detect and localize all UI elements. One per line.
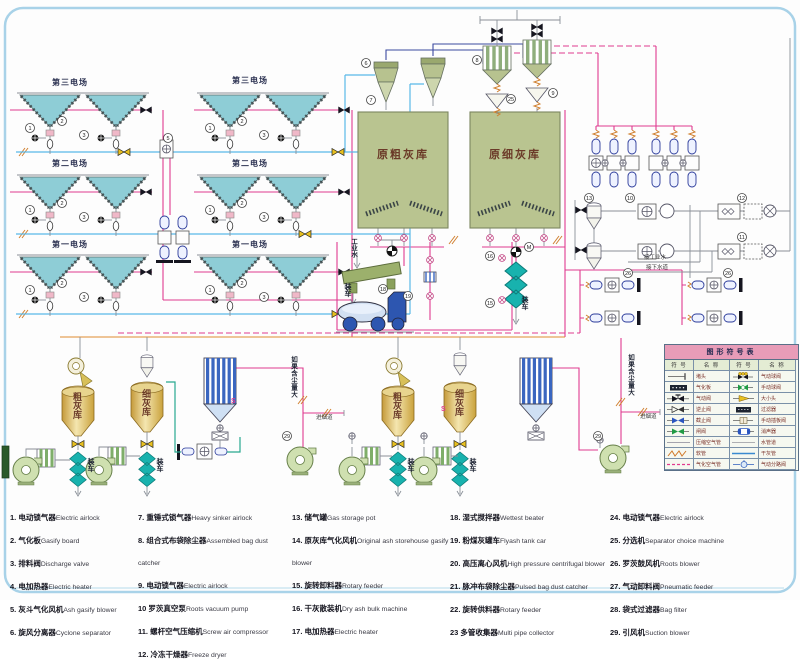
- callout-1: 1: [206, 206, 215, 215]
- bottom-right-silos: [339, 353, 476, 496]
- reducer-symbol: [731, 394, 757, 403]
- legend-item: 20. 高压离心风机High pressure centrifugal blow…: [450, 551, 610, 573]
- svg-text:1: 1: [28, 288, 31, 294]
- loading-label-bl2: 装车: [156, 458, 163, 472]
- svg-text:16: 16: [487, 254, 493, 260]
- symbol-name: 大小头: [759, 393, 796, 404]
- callout-3: 3: [80, 131, 89, 140]
- legend-item: 6. 旋风分离器Cyclone separator: [10, 620, 138, 642]
- raw-coarse-silo-label: 原粗灰库: [377, 150, 429, 161]
- symbol-name: 水管道: [759, 437, 796, 448]
- svg-text:9: 9: [551, 91, 554, 97]
- legend-item: 8. 组合式布袋除尘器Assembled bag dust catcher: [138, 528, 292, 571]
- symbol-cell: [730, 382, 759, 393]
- if-dusty-note-right: 如果含尘量大: [626, 354, 633, 396]
- symbol-cell: [730, 404, 759, 415]
- svg-text:29: 29: [284, 434, 290, 440]
- to-sewer-label: 接下水道: [646, 266, 668, 272]
- raw-fine-silo-label: 原细灰库: [489, 150, 541, 161]
- svg-text:3: 3: [262, 295, 265, 301]
- svg-text:26: 26: [725, 271, 731, 277]
- svg-text:3: 3: [82, 295, 85, 301]
- svg-text:2: 2: [60, 201, 63, 207]
- symbol-cell: [665, 437, 694, 448]
- bottom-right-bag-filter: [520, 358, 552, 440]
- loading-label-bl1: 装车: [87, 458, 94, 472]
- svg-text:2: 2: [240, 119, 243, 125]
- dry-ash-bulk-loader: [499, 247, 527, 324]
- to-flue-label-left: 进烟道: [316, 416, 333, 422]
- svg-text:1: 1: [28, 126, 31, 132]
- svg-text:5: 5: [166, 136, 169, 142]
- ball_pneu-symbol: [731, 372, 757, 381]
- callout-2: 2: [58, 199, 67, 208]
- coarse-silo-label-left: 粗灰库: [72, 392, 81, 419]
- legend-item: 10 罗茨真空泵Roots vacuum pump: [138, 596, 292, 618]
- loading-label-br2: 装车: [469, 458, 476, 472]
- symbol-cell: [665, 448, 694, 459]
- svg-text:M: M: [527, 245, 532, 251]
- flyash-tank-truck: [336, 292, 414, 332]
- legend-item: 29. 引风机Suction blower: [610, 620, 786, 642]
- air_line-symbol: [666, 438, 692, 447]
- symbol-cell: [665, 404, 694, 415]
- callout-2: 2: [58, 117, 67, 126]
- callout-15: 15: [486, 299, 495, 308]
- svg-text:3: 3: [82, 215, 85, 221]
- callout-6: 6: [362, 59, 371, 68]
- symbol-cell: [730, 448, 759, 459]
- raw-fine-silo: [470, 112, 560, 228]
- legend-item: 14. 原灰库气化风机Original ash storehouse gasif…: [292, 528, 450, 571]
- s-mark-right: S: [441, 406, 446, 413]
- symbol-cell: [730, 437, 759, 448]
- symbol-name: 软管: [694, 448, 730, 459]
- callout-26: 26: [724, 269, 733, 278]
- raw-coarse-silo: [358, 112, 448, 228]
- gasify_board-symbol: [666, 383, 692, 392]
- symbol-cell: [730, 459, 759, 470]
- legend-item: 16. 干灰散装机Dry ash bulk machine: [292, 596, 450, 618]
- legend-item: 26. 罗茨鼓风机Roots blower: [610, 551, 786, 573]
- callout-10: 10: [626, 194, 635, 203]
- svg-text:1: 1: [208, 126, 211, 132]
- callout-1: 1: [26, 206, 35, 215]
- legend-item: 1. 电动锁气器Electric airlock: [10, 505, 138, 527]
- to-flue-label-right: 进烟道: [640, 415, 657, 421]
- field3-label-mid: 第三电场: [232, 77, 268, 85]
- svg-text:3: 3: [82, 133, 85, 139]
- symbol-cell: [730, 393, 759, 404]
- symbol-cell: [730, 371, 759, 382]
- callout-7: 7: [367, 96, 376, 105]
- s-mark-left: S: [231, 398, 236, 405]
- legend-item: 15. 旋转卸料器Rotary feeder: [292, 573, 450, 595]
- callout-12: 12: [738, 194, 747, 203]
- callout-16: 16: [486, 252, 495, 261]
- callout-1: 1: [26, 286, 35, 295]
- loading-label-br1: 装车: [407, 458, 414, 472]
- symbol-name: 气化空气管: [694, 459, 730, 470]
- gate_valve-symbol: [666, 427, 692, 436]
- symbol-cell: [730, 426, 759, 437]
- callout-3: 3: [260, 131, 269, 140]
- symbol-cell: [665, 382, 694, 393]
- symbol-table-grid: 符 号名 称符 号名 称堵头气动球阀气化板手动球阀气动阀大小头逆止阀过滤器截止阀…: [665, 360, 798, 470]
- symbol-table-header-1: 名 称: [694, 360, 730, 371]
- bottom-left-bag-filter: [166, 358, 240, 460]
- gasify_pipe-symbol: [666, 460, 692, 469]
- check_valve-symbol: [666, 405, 692, 414]
- symbol-cell: [665, 371, 694, 382]
- legend-item: 4. 电加热器Electric heater: [10, 574, 138, 596]
- pneumatic_valve-symbol: [666, 394, 692, 403]
- loading-label-bulk: 装车: [521, 296, 528, 310]
- legend-item: 11. 螺杆空气压缩机Screw air compressor: [138, 619, 292, 641]
- symbol-cell: [665, 459, 694, 470]
- svg-text:29: 29: [595, 434, 601, 440]
- to-industrial-water-label: 接工业水: [644, 256, 666, 262]
- legend-item: 19. 粉煤灰罐车Flyash tank car: [450, 528, 610, 550]
- coarse-silo-label-right: 粗灰库: [392, 392, 401, 419]
- callout-29: 29: [594, 432, 603, 441]
- callout-9: 9: [549, 89, 558, 98]
- field2-label-left: 第二电场: [52, 160, 88, 168]
- if-dusty-note-left: 如果含尘量大: [289, 356, 296, 398]
- svg-text:2: 2: [60, 119, 63, 125]
- industrial-water-label: 工业水: [349, 238, 356, 258]
- symbol-name: 气动阀: [694, 393, 730, 404]
- plug-symbol: [666, 372, 692, 381]
- symbol-name: 干灰管: [759, 448, 796, 459]
- legend-item: 23 多管收集器Multi pipe collector: [450, 620, 610, 642]
- legend-column-3: 13. 储气罐Gas storage pot14. 原灰库气化风机Origina…: [292, 505, 450, 665]
- callout-18: 18: [379, 285, 388, 294]
- loading-label-truck: 装车: [344, 283, 351, 297]
- multi-pipe-collector-manifold: [589, 130, 699, 187]
- symbol-cell: [665, 393, 694, 404]
- legend-item: 3. 排料阀Discharge valve: [10, 551, 138, 573]
- symbol-name: 堵头: [694, 371, 730, 382]
- callout-1: 1: [26, 124, 35, 133]
- legend-column-1: 1. 电动锁气器Electric airlock2. 气化板Gasify boa…: [10, 505, 138, 665]
- legend-column-5: 24. 电动锁气器Electric airlock25. 分选机Separato…: [610, 505, 786, 665]
- callout-M: M: [525, 243, 534, 252]
- svg-text:25: 25: [508, 97, 514, 103]
- svg-text:1: 1: [28, 208, 31, 214]
- callout-3: 3: [80, 293, 89, 302]
- field2-label-mid: 第二电场: [232, 160, 268, 168]
- symbol-name: 过滤器: [759, 404, 796, 415]
- symbol-table-header-2: 符 号: [730, 360, 759, 371]
- svg-text:1: 1: [208, 288, 211, 294]
- svg-text:8: 8: [475, 58, 478, 64]
- callout-3: 3: [80, 213, 89, 222]
- svg-text:19: 19: [405, 294, 411, 300]
- equipment-legend: 1. 电动锁气器Electric airlock2. 气化板Gasify boa…: [10, 505, 794, 665]
- callout-2: 2: [238, 117, 247, 126]
- symbol-name: 截止阀: [694, 415, 730, 426]
- callout-19: 19: [404, 292, 413, 301]
- symbol-table-title: 图形符号表: [665, 345, 798, 360]
- symbol-name: 气动分路阀: [759, 459, 796, 470]
- legend-item: 13. 储气罐Gas storage pot: [292, 505, 450, 527]
- legend-item: 5. 灰斗气化风机Ash gasify blower: [10, 597, 138, 619]
- field3-label-left: 第三电场: [52, 79, 88, 87]
- legend-item: 25. 分选机Separator choice machine: [610, 528, 786, 550]
- flowsheet-page: 1231231231231231235678259131012111819161…: [0, 0, 800, 600]
- svg-text:18: 18: [380, 287, 386, 293]
- field1-label-mid: 第一电场: [232, 241, 268, 249]
- svg-text:3: 3: [262, 133, 265, 139]
- symbol-cell: [730, 415, 759, 426]
- svg-text:2: 2: [240, 281, 243, 287]
- symbol-cell: [665, 415, 694, 426]
- symbol-name: 手动插板阀: [759, 415, 796, 426]
- legend-item: 22. 旋转供料器Rotary feeder: [450, 597, 610, 619]
- hopper-strip-blowers: [156, 140, 191, 263]
- svg-text:7: 7: [369, 98, 372, 104]
- legend-item: 27. 气动卸料阀Pneumatic feeder: [610, 574, 786, 596]
- filter-symbol: [731, 405, 757, 414]
- svg-text:1: 1: [208, 208, 211, 214]
- callout-29: 29: [283, 432, 292, 441]
- fine-silo-label-left: 细灰库: [141, 389, 150, 416]
- symbol-name: 气化板: [694, 382, 730, 393]
- symbol-name: 手动球阀: [759, 382, 796, 393]
- callout-1: 1: [206, 124, 215, 133]
- svg-text:13: 13: [586, 196, 592, 202]
- svg-text:2: 2: [240, 201, 243, 207]
- legend-item: 28. 袋式过滤器Bag filter: [610, 597, 786, 619]
- svg-text:11: 11: [739, 235, 745, 241]
- legend-item: 7. 重锤式锁气器Heavy sinker airlock: [138, 505, 292, 527]
- callout-3: 3: [260, 213, 269, 222]
- stop_valve-symbol: [666, 416, 692, 425]
- fine-silo-label-right: 细灰库: [454, 389, 463, 416]
- hose-symbol: [666, 449, 692, 458]
- legend-item: 17. 电加热器Electric heater: [292, 619, 450, 641]
- legend-item: 21. 脉冲布袋除尘器Pulsed bag dust catcher: [450, 574, 610, 596]
- legend-column-2: 7. 重锤式锁气器Heavy sinker airlock8. 组合式布袋除尘器…: [138, 505, 292, 665]
- dryash_pipe-symbol: [731, 449, 757, 458]
- muffler-symbol: [731, 427, 757, 436]
- callout-1: 1: [206, 286, 215, 295]
- symbol-name: 压缩空气管: [694, 437, 730, 448]
- callout-3: 3: [260, 293, 269, 302]
- svg-text:3: 3: [262, 215, 265, 221]
- symbol-name: 消声器: [759, 426, 796, 437]
- svg-text:10: 10: [627, 196, 633, 202]
- svg-text:26: 26: [625, 271, 631, 277]
- callout-2: 2: [58, 279, 67, 288]
- legend-item: 18. 湿式搅拌器Wettest beater: [450, 505, 610, 527]
- ball_manual-symbol: [731, 383, 757, 392]
- gas-storage-pots: [576, 203, 602, 269]
- symbol-name: 闸阀: [694, 426, 730, 437]
- svg-text:6: 6: [364, 61, 367, 67]
- screw-compressor-dryer-rows: [718, 204, 776, 259]
- symbol-name: 逆止阀: [694, 404, 730, 415]
- bottom-left-silos: [2, 355, 163, 496]
- legend-column-4: 18. 湿式搅拌器Wettest beater19. 粉煤灰罐车Flyash t…: [450, 505, 610, 665]
- callout-25: 25: [507, 95, 516, 104]
- legend-item: 12. 冷冻干燥器Freeze dryer: [138, 642, 292, 664]
- field1-label-left: 第一电场: [52, 241, 88, 249]
- symbol-table: 图形符号表 符 号名 称符 号名 称堵头气动球阀气化板手动球阀气动阀大小头逆止阀…: [664, 344, 799, 471]
- symbol-table-header-0: 符 号: [665, 360, 694, 371]
- symbol-name: 气动球阀: [759, 371, 796, 382]
- roots-blower-grid: [586, 278, 743, 325]
- callout-26: 26: [624, 269, 633, 278]
- callout-11: 11: [738, 233, 747, 242]
- water_pipe-symbol: [731, 438, 757, 447]
- callout-13: 13: [585, 194, 594, 203]
- vacuum-pumps: [638, 204, 674, 259]
- svg-text:15: 15: [487, 301, 493, 307]
- callout-2: 2: [238, 279, 247, 288]
- legend-item: 2. 气化板Gasify board: [10, 528, 138, 550]
- callout-5: 5: [164, 134, 173, 143]
- callout-2: 2: [238, 199, 247, 208]
- legend-item: 24. 电动锁气器Electric airlock: [610, 505, 786, 527]
- divert-symbol: [731, 460, 757, 469]
- symbol-cell: [665, 426, 694, 437]
- svg-text:12: 12: [739, 196, 745, 202]
- silo-top-bag-filters: [483, 24, 551, 116]
- symbol-table-header-3: 名 称: [759, 360, 796, 371]
- callout-8: 8: [473, 56, 482, 65]
- legend-item: 9. 电动锁气器Electric airlock: [138, 573, 292, 595]
- gate_manual-symbol: [731, 416, 757, 425]
- svg-text:2: 2: [60, 281, 63, 287]
